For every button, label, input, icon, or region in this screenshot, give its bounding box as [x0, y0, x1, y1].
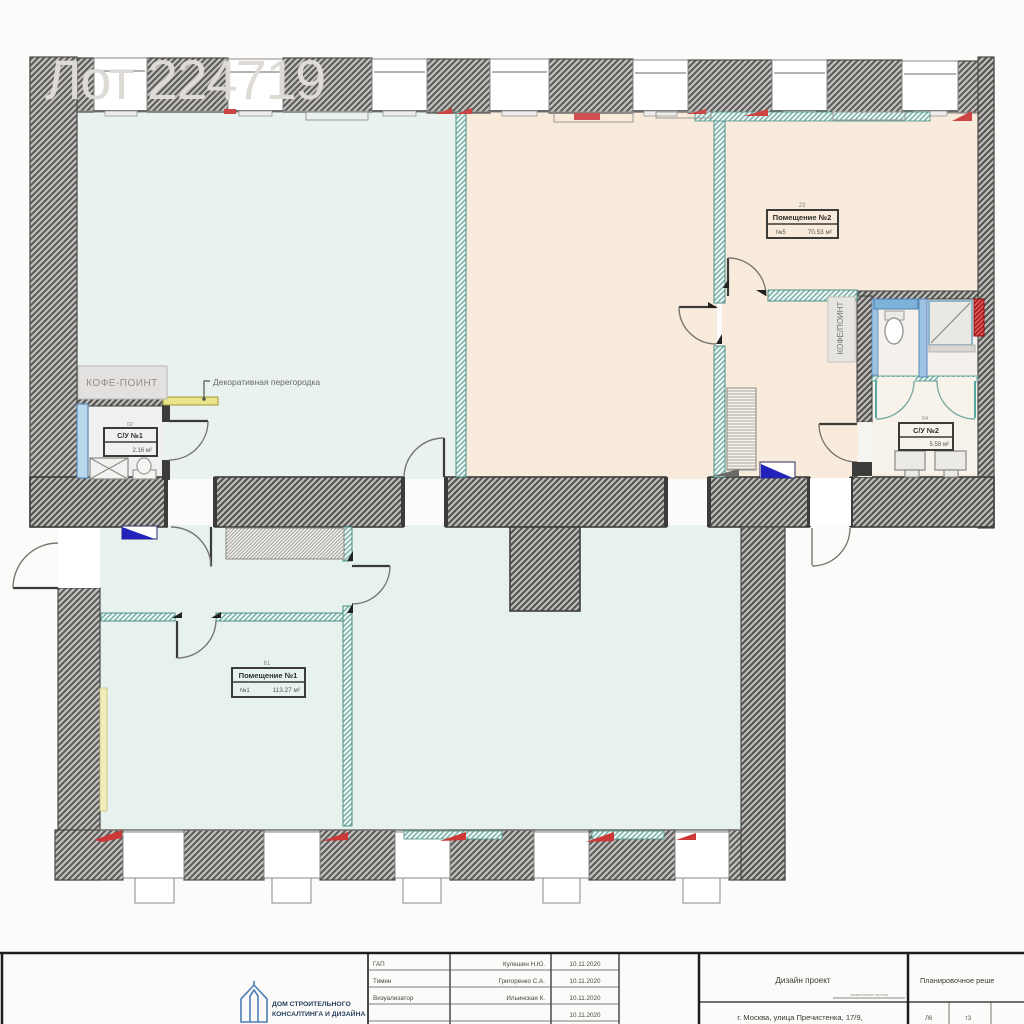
svg-text:54: 54	[922, 416, 928, 422]
svg-text:Помещение №2: Помещение №2	[773, 213, 832, 222]
svg-text:Планировочное реше: Планировочное реше	[920, 976, 994, 985]
svg-text:Визуализатор: Визуализатор	[373, 995, 414, 1002]
svg-text:КОНСАЛТИНГА И ДИЗАЙНА: КОНСАЛТИНГА И ДИЗАЙНА	[272, 1009, 365, 1018]
svg-text:ДОМ СТРОИТЕЛЬНОГО: ДОМ СТРОИТЕЛЬНОГО	[272, 1001, 351, 1008]
svg-text:С/У №2: С/У №2	[913, 426, 939, 435]
svg-text:ГАП: ГАП	[373, 961, 385, 968]
svg-text:5.58 м²: 5.58 м²	[930, 442, 949, 448]
svg-text:113.27 м²: 113.27 м²	[273, 687, 300, 694]
svg-text:Григоренко С.А.: Григоренко С.А.	[498, 978, 545, 985]
svg-text:КОФЕ-ПОИНТ: КОФЕ-ПОИНТ	[86, 378, 158, 389]
svg-text:70.53 м²: 70.53 м²	[808, 229, 832, 236]
svg-text:КОФЕ/ПОИНТ: КОФЕ/ПОИНТ	[836, 301, 845, 354]
svg-text:наименование чертежа: наименование чертежа	[850, 993, 888, 997]
svg-text:№1: №1	[240, 687, 250, 694]
svg-text:№5: №5	[776, 229, 786, 236]
svg-text:10.11.2020: 10.11.2020	[569, 995, 601, 1002]
svg-text:т3: т3	[965, 1016, 972, 1022]
svg-text:г. Москва, улица Пречистенка,: г. Москва, улица Пречистенка, 17/9,	[737, 1013, 862, 1022]
svg-text:Л6: Л6	[925, 1016, 933, 1022]
svg-text:Кулешин Н.Ю.: Кулешин Н.Ю.	[503, 961, 545, 968]
svg-text:С/У №1: С/У №1	[117, 431, 143, 440]
svg-text:10.11.2020: 10.11.2020	[569, 1012, 601, 1019]
svg-text:10.11.2020: 10.11.2020	[569, 978, 601, 985]
svg-text:Помещение №1: Помещение №1	[239, 671, 299, 680]
svg-text:Тимин: Тимин	[373, 978, 392, 985]
svg-text:10.11.2020: 10.11.2020	[569, 961, 601, 968]
svg-text:23: 23	[799, 203, 806, 209]
svg-text:Ильинская К.: Ильинская К.	[506, 995, 545, 1002]
svg-text:61: 61	[264, 661, 271, 667]
svg-text:Дизайн проект: Дизайн проект	[775, 976, 831, 985]
svg-text:Декоративная перегородка: Декоративная перегородка	[213, 377, 320, 387]
svg-text:Лот 224719: Лот 224719	[45, 48, 325, 111]
svg-text:2.16 м²: 2.16 м²	[133, 448, 152, 454]
